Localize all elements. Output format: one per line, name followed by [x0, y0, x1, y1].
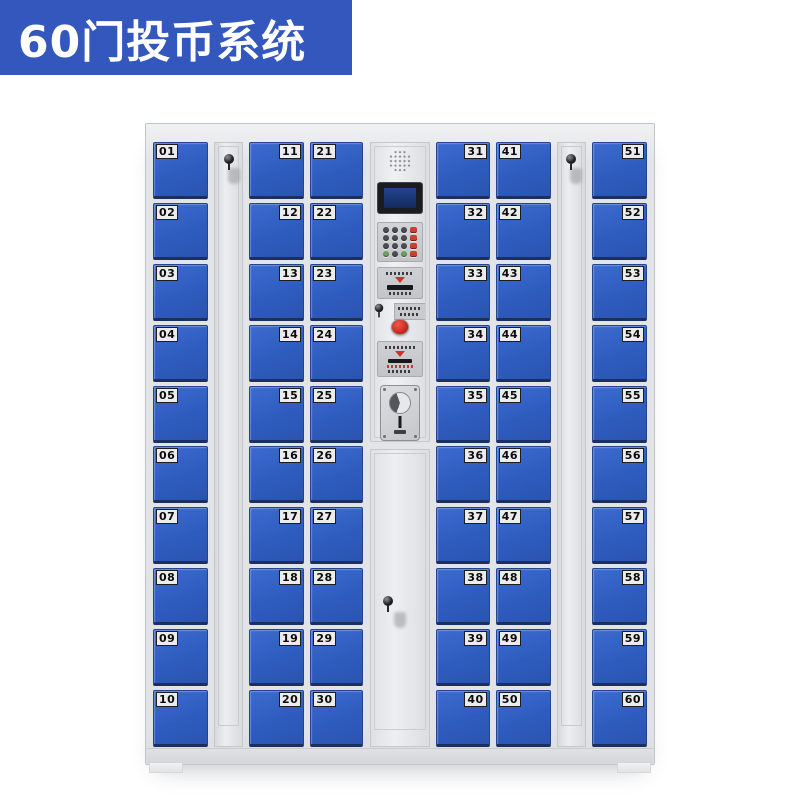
door-column: 01020304050607080910	[153, 142, 208, 747]
ticket-slot[interactable]	[387, 285, 413, 290]
locker-door-07[interactable]: 07	[153, 507, 208, 564]
cabinet-foot-right	[617, 761, 651, 773]
locker-door-08[interactable]: 08	[153, 568, 208, 625]
locker-door-56[interactable]: 56	[592, 446, 647, 503]
keypad-button[interactable]	[410, 251, 417, 257]
door-number-label: 01	[156, 144, 178, 159]
coin-acceptor[interactable]	[380, 385, 420, 441]
locker-door-20[interactable]: 20	[249, 690, 304, 747]
hanging-keys	[570, 168, 582, 184]
door-number-label: 53	[622, 266, 644, 281]
keypad-button[interactable]	[401, 251, 407, 257]
locker-door-03[interactable]: 03	[153, 264, 208, 321]
locker-door-54[interactable]: 54	[592, 325, 647, 382]
locker-door-18[interactable]: 18	[249, 568, 304, 625]
micro-text	[389, 292, 411, 295]
door-number-label: 24	[313, 327, 335, 342]
door-number-label: 46	[499, 448, 521, 463]
service-door[interactable]	[370, 449, 430, 747]
locker-door-35[interactable]: 35	[436, 386, 490, 443]
door-number-label: 32	[464, 205, 486, 220]
side-lock-panel[interactable]	[214, 142, 243, 747]
locker-door-59[interactable]: 59	[592, 629, 647, 686]
hanging-keys	[394, 612, 406, 628]
door-number-label: 60	[622, 692, 644, 707]
locker-door-39[interactable]: 39	[436, 629, 490, 686]
door-number-label: 45	[499, 388, 521, 403]
door-number-label: 30	[313, 692, 335, 707]
locker-door-22[interactable]: 22	[310, 203, 363, 260]
locker-door-01[interactable]: 01	[153, 142, 208, 199]
locker-door-36[interactable]: 36	[436, 446, 490, 503]
door-number-label: 41	[499, 144, 521, 159]
door-number-label: 42	[499, 205, 521, 220]
locker-door-06[interactable]: 06	[153, 446, 208, 503]
coin-return-lever[interactable]	[394, 430, 406, 434]
locker-door-12[interactable]: 12	[249, 203, 304, 260]
door-number-label: 52	[622, 205, 644, 220]
speaker-grille-icon	[388, 150, 412, 172]
door-number-label: 38	[464, 570, 486, 585]
door-number-label: 25	[313, 388, 335, 403]
door-number-label: 50	[499, 692, 521, 707]
locker-door-26[interactable]: 26	[310, 446, 363, 503]
locker-door-11[interactable]: 11	[249, 142, 304, 199]
locker-door-15[interactable]: 15	[249, 386, 304, 443]
door-number-label: 02	[156, 205, 178, 220]
keypad-button[interactable]	[392, 227, 398, 233]
locker-door-02[interactable]: 02	[153, 203, 208, 260]
locker-door-30[interactable]: 30	[310, 690, 363, 747]
locker-door-50[interactable]: 50	[496, 690, 551, 747]
coin-slot[interactable]	[398, 416, 401, 428]
arrow-down-icon	[395, 351, 405, 357]
locker-door-14[interactable]: 14	[249, 325, 304, 382]
keypad-button[interactable]	[392, 251, 398, 257]
locker-door-38[interactable]: 38	[436, 568, 490, 625]
door-number-label: 35	[464, 388, 486, 403]
door-number-label: 49	[499, 631, 521, 646]
side-panel-keyhole-icon[interactable]	[566, 154, 576, 164]
door-number-label: 27	[313, 509, 335, 524]
door-number-label: 44	[499, 327, 521, 342]
locker-door-57[interactable]: 57	[592, 507, 647, 564]
locker-door-47[interactable]: 47	[496, 507, 551, 564]
locker-door-31[interactable]: 31	[436, 142, 490, 199]
service-door-keyhole-icon[interactable]	[383, 596, 393, 606]
door-number-label: 55	[622, 388, 644, 403]
side-lock-panel[interactable]	[557, 142, 586, 747]
locker-door-16[interactable]: 16	[249, 446, 304, 503]
locker-door-40[interactable]: 40	[436, 690, 490, 747]
door-number-label: 48	[499, 570, 521, 585]
door-number-label: 08	[156, 570, 178, 585]
door-number-label: 20	[279, 692, 301, 707]
door-number-label: 09	[156, 631, 178, 646]
door-number-label: 06	[156, 448, 178, 463]
door-column: 21222324252627282930	[310, 142, 363, 747]
door-number-label: 59	[622, 631, 644, 646]
door-column: 51525354555657585960	[592, 142, 647, 747]
banner: 60门投币系统	[0, 0, 352, 75]
keypad-button[interactable]	[392, 235, 398, 241]
door-number-label: 40	[464, 692, 486, 707]
page-title: 60门投币系统	[18, 6, 306, 70]
locker-door-55[interactable]: 55	[592, 386, 647, 443]
micro-text	[386, 272, 414, 275]
door-number-label: 14	[279, 327, 301, 342]
instruction-plate	[377, 341, 423, 377]
door-number-label: 54	[622, 327, 644, 342]
locker-door-28[interactable]: 28	[310, 568, 363, 625]
door-column: 31323334353637383940	[436, 142, 490, 747]
locker-door-53[interactable]: 53	[592, 264, 647, 321]
locker-door-34[interactable]: 34	[436, 325, 490, 382]
locker-door-43[interactable]: 43	[496, 264, 551, 321]
micro-text	[400, 313, 420, 316]
door-number-label: 57	[622, 509, 644, 524]
locker-door-42[interactable]: 42	[496, 203, 551, 260]
locker-door-32[interactable]: 32	[436, 203, 490, 260]
screw-icon	[414, 435, 417, 438]
hanging-keys	[228, 168, 240, 184]
door-number-label: 34	[464, 327, 486, 342]
door-column: 41424344454647484950	[496, 142, 551, 747]
door-number-label: 05	[156, 388, 178, 403]
keypad-grid	[378, 227, 422, 257]
door-number-label: 28	[313, 570, 335, 585]
keypad-button[interactable]	[401, 235, 407, 241]
door-number-label: 51	[622, 144, 644, 159]
cabinet-foot-left	[149, 761, 183, 773]
lcd-screen	[384, 188, 416, 208]
locker-door-10[interactable]: 10	[153, 690, 208, 747]
keypad-button[interactable]	[383, 251, 389, 257]
numeric-keypad[interactable]	[377, 222, 423, 262]
locker-door-49[interactable]: 49	[496, 629, 551, 686]
keypad-button[interactable]	[410, 235, 417, 241]
instruction-sticker	[394, 303, 426, 320]
keypad-button[interactable]	[383, 243, 389, 249]
door-number-label: 16	[279, 448, 301, 463]
door-number-label: 18	[279, 570, 301, 585]
door-number-label: 04	[156, 327, 178, 342]
screw-icon	[383, 435, 386, 438]
cabinet-columns: 01020304050607080910 1112131415161718192…	[153, 142, 647, 747]
lcd-display	[378, 183, 422, 213]
micro-text	[385, 346, 415, 349]
keypad-button[interactable]	[383, 235, 389, 241]
door-number-label: 13	[279, 266, 301, 281]
locker-door-48[interactable]: 48	[496, 568, 551, 625]
micro-text-red	[387, 365, 413, 368]
door-number-label: 56	[622, 448, 644, 463]
door-number-label: 47	[499, 509, 521, 524]
door-number-label: 22	[313, 205, 335, 220]
locker-door-23[interactable]: 23	[310, 264, 363, 321]
door-number-label: 10	[156, 692, 178, 707]
locker-door-24[interactable]: 24	[310, 325, 363, 382]
door-number-label: 03	[156, 266, 178, 281]
door-number-label: 11	[279, 144, 301, 159]
locker-door-05[interactable]: 05	[153, 386, 208, 443]
locker-door-17[interactable]: 17	[249, 507, 304, 564]
door-number-label: 31	[464, 144, 486, 159]
door-number-label: 23	[313, 266, 335, 281]
door-number-label: 29	[313, 631, 335, 646]
locker-door-25[interactable]: 25	[310, 386, 363, 443]
control-column	[370, 142, 430, 747]
keypad-button[interactable]	[410, 243, 417, 249]
door-number-label: 21	[313, 144, 335, 159]
locker-door-52[interactable]: 52	[592, 203, 647, 260]
door-column: 11121314151617181920	[249, 142, 304, 747]
door-number-label: 07	[156, 509, 178, 524]
door-number-label: 15	[279, 388, 301, 403]
coin-dial[interactable]	[389, 392, 411, 414]
door-number-label: 19	[279, 631, 301, 646]
locker-door-04[interactable]: 04	[153, 325, 208, 382]
locker-door-60[interactable]: 60	[592, 690, 647, 747]
locker-door-37[interactable]: 37	[436, 507, 490, 564]
door-number-label: 33	[464, 266, 486, 281]
keypad-button[interactable]	[401, 227, 407, 233]
control-panel	[370, 142, 430, 442]
locker-door-45[interactable]: 45	[496, 386, 551, 443]
micro-text	[388, 370, 412, 373]
red-return-button[interactable]	[391, 319, 409, 336]
door-number-label: 36	[464, 448, 486, 463]
door-number-label: 17	[279, 509, 301, 524]
locker-door-21[interactable]: 21	[310, 142, 363, 199]
keypad-button[interactable]	[392, 243, 398, 249]
locker-door-46[interactable]: 46	[496, 446, 551, 503]
locker-door-19[interactable]: 19	[249, 629, 304, 686]
locker-door-09[interactable]: 09	[153, 629, 208, 686]
door-number-label: 43	[499, 266, 521, 281]
receipt-slot[interactable]	[388, 359, 412, 363]
micro-text	[398, 307, 422, 310]
screw-icon	[383, 388, 386, 391]
keypad-button[interactable]	[410, 227, 417, 233]
screw-icon	[414, 388, 417, 391]
keypad-button[interactable]	[401, 243, 407, 249]
door-number-label: 39	[464, 631, 486, 646]
service-keyhole-icon[interactable]	[374, 303, 383, 312]
locker-door-44[interactable]: 44	[496, 325, 551, 382]
door-number-label: 37	[464, 509, 486, 524]
door-number-label: 58	[622, 570, 644, 585]
arrow-down-icon	[395, 277, 405, 283]
locker-cabinet: 01020304050607080910 1112131415161718192…	[145, 123, 655, 765]
service-lock-row	[374, 303, 426, 317]
locker-door-29[interactable]: 29	[310, 629, 363, 686]
locker-door-41[interactable]: 41	[496, 142, 551, 199]
locker-door-51[interactable]: 51	[592, 142, 647, 199]
locker-door-58[interactable]: 58	[592, 568, 647, 625]
door-number-label: 26	[313, 448, 335, 463]
locker-door-27[interactable]: 27	[310, 507, 363, 564]
side-panel-keyhole-icon[interactable]	[224, 154, 234, 164]
card-reader-panel[interactable]	[377, 267, 423, 299]
locker-door-13[interactable]: 13	[249, 264, 304, 321]
locker-door-33[interactable]: 33	[436, 264, 490, 321]
door-number-label: 12	[279, 205, 301, 220]
keypad-button[interactable]	[383, 227, 389, 233]
